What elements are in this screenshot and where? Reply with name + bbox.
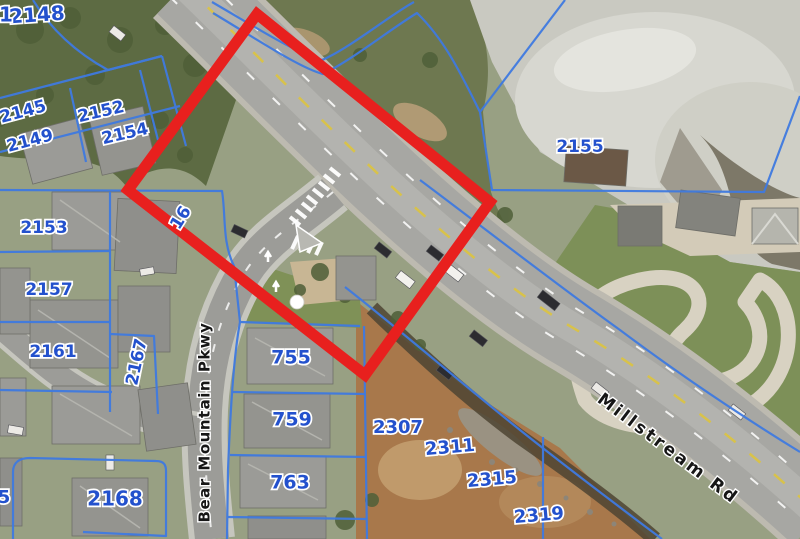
parcel-label-2168: 2168 [87,487,143,511]
parcel-label-2157: 2157 [25,280,72,300]
house [138,383,196,451]
house [336,256,376,300]
road-label-bear-mountain-pkwy: Bear Mountain Pkwy [196,322,214,523]
survey-marker-dot [290,295,304,309]
kart-building [676,190,741,236]
parcel-line [0,251,110,252]
parcel-label-2161: 2161 [29,342,76,362]
partial-label-1: 1 [0,3,13,27]
parcel-label-2319: 2319 [513,503,565,528]
parcel-label-2311: 2311 [424,435,476,460]
parcel-label-2153: 2153 [20,218,67,238]
parcel-label-759: 759 [272,409,312,431]
house [248,516,326,539]
parcel-label-2307: 2307 [373,417,423,438]
car [106,455,114,470]
parcel-label-2148: 2148 [8,1,65,29]
parcel-label-755: 755 [271,347,311,369]
parcel-label-2315: 2315 [466,467,518,492]
house [0,268,30,334]
parcel-label-763: 763 [270,472,310,494]
parcel-label-2155: 2155 [556,137,603,157]
aerial-map: 2148214521492152215421532157216121672155… [0,0,800,539]
partial-label-5: 5 [0,487,10,508]
kart-building [618,206,662,246]
aerial-map-figure: 2148214521492152215421532157216121672155… [0,0,800,539]
